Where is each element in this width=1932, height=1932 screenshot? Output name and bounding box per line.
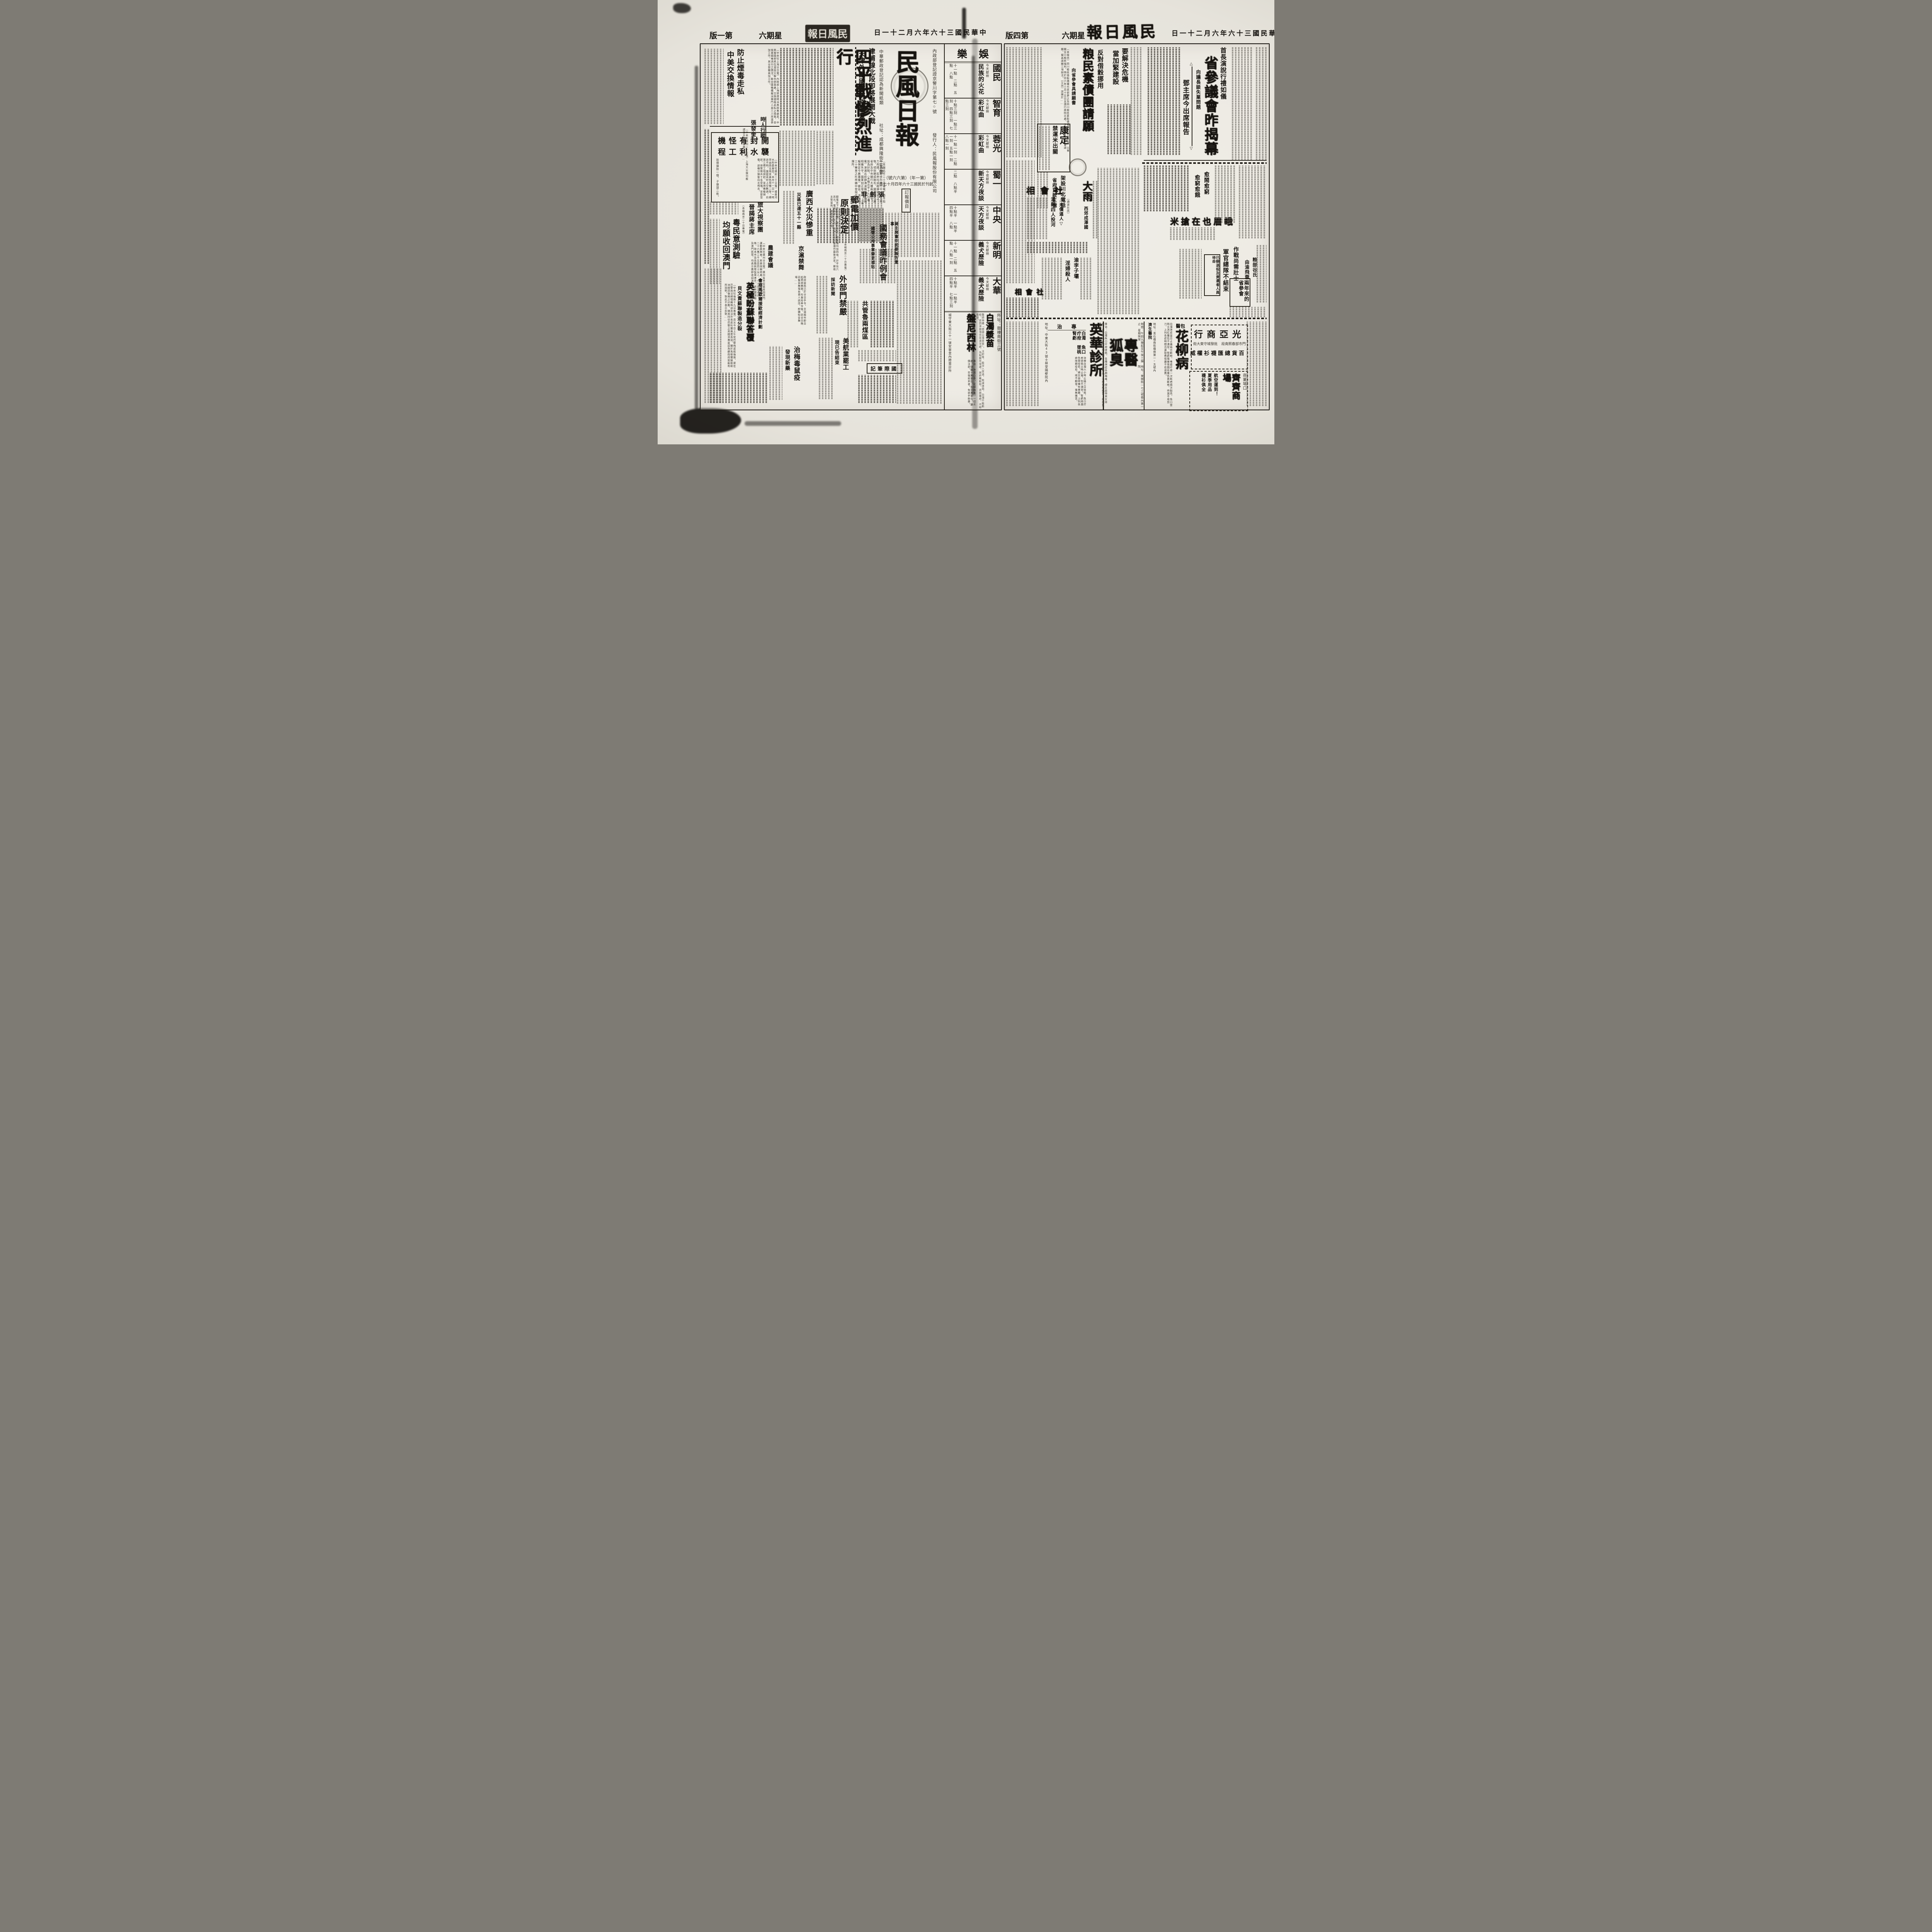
column-text bbox=[1097, 168, 1141, 315]
rule bbox=[710, 126, 779, 127]
shehui2-title: 社會相 bbox=[1015, 287, 1047, 297]
divider bbox=[1142, 162, 1267, 164]
left-edition-label: 第一版 bbox=[709, 29, 733, 41]
column-text bbox=[1148, 47, 1180, 155]
masthead-issue-number: （第一年）（第六六號） bbox=[882, 175, 930, 181]
column-text bbox=[1179, 249, 1202, 299]
meizhi-headline: 治梅毒鼠疫 bbox=[793, 346, 799, 393]
huajiu-clinic-name: 濟生醫院 bbox=[1146, 323, 1151, 408]
grain-subhead: 向省參會具請願書 bbox=[1071, 68, 1076, 138]
column-text bbox=[704, 268, 721, 403]
left-masthead-stamp: 民風日報 bbox=[805, 25, 850, 42]
drug-headline-1: 防止煙毒走私 bbox=[736, 49, 744, 111]
yinghua-label: 專治 bbox=[1048, 323, 1086, 330]
column-text bbox=[710, 202, 738, 215]
meihang-subhead: 現已告結束 bbox=[834, 340, 839, 383]
rule bbox=[1144, 160, 1267, 161]
huchou-specialty: 專治：白濁魚口疔疳墜桃，各種淋症各期梅毒，婦女崩帶男女痔症。本所專治各症概用最新… bbox=[1098, 323, 1107, 408]
yinghua-clinic-ad: 英華診所 專治 白濁 魚口 疔疳 墜桃 腎虧 治療白濁六小時止痛三日除根，魚口疔… bbox=[1042, 321, 1104, 410]
dayu-subhead: 西郊成澤國 bbox=[1083, 206, 1088, 240]
column-text bbox=[1232, 47, 1253, 161]
ads-divider bbox=[1006, 318, 1267, 319]
showtimes: 十一點 二點 五點 八點 bbox=[946, 64, 957, 97]
column-text bbox=[1080, 257, 1092, 300]
huajiu-kicker: 包醫 bbox=[1176, 323, 1185, 329]
theater-name: 大華 bbox=[989, 277, 1000, 310]
masthead-title: 民風日報 bbox=[891, 49, 920, 173]
corner-ink-blob bbox=[673, 3, 691, 13]
ad-address-secondary: 所址：鼓樓南街三號 bbox=[994, 313, 1000, 410]
left-page: 娛樂 國民 今天獻映 民族的火花 十一點 二點 五點 八點 智育 今天獻映 彩虹… bbox=[700, 43, 1002, 410]
column-text bbox=[816, 131, 833, 185]
film-title: 天方夜談 bbox=[957, 206, 984, 239]
column-text bbox=[1230, 307, 1267, 318]
bevin-headline: 英極盼蘇聯答覆 bbox=[745, 282, 754, 355]
waibu-headline: 外部門禁嚴 bbox=[838, 275, 847, 323]
qiqi-line1: 航空運到！ bbox=[1212, 373, 1218, 409]
drug-headline-2: 中美交換情報 bbox=[726, 51, 734, 113]
jinghu-body: 政府當局已於廿日手令，京滬兩市即日起禁絕舞業，社會局奉令後，定廿日晚召集各舞場負… bbox=[776, 276, 806, 326]
nongjian-headline: 農建會議 bbox=[767, 245, 773, 272]
column-text bbox=[779, 131, 815, 186]
column-text bbox=[704, 129, 709, 264]
yinghua-address: 地址：中東大街43號士林堂隔壁院內 bbox=[1043, 323, 1048, 408]
masthead-publisher: 發行人：民風報股份有限公司 bbox=[932, 133, 936, 202]
huchou-clinic-ad: 時間：午前九鐘起至午後三鐘止 星期照常 地址：東御街一七三號巷內第一院 專醫狐臭… bbox=[1102, 321, 1145, 410]
column-text bbox=[769, 346, 782, 400]
qiqi-line2: 夏季用品 bbox=[1206, 373, 1212, 409]
right-edition-label: 第四版 bbox=[1005, 29, 1029, 41]
lvda-dateline: （本報南京二十日專電） bbox=[742, 204, 744, 239]
huajiu-body: 白濁淋症當日止痛兩日斷根，毒瘡疔疳一次乾疤兩次脫亮，魚口墜桃立消紅腫包不潰穿，腎… bbox=[1156, 323, 1172, 408]
bevin-kicker: 會商馬歇爾援歐經濟計劃 bbox=[758, 278, 762, 348]
theater-name: 蜀一 bbox=[989, 170, 1000, 204]
theater-name: 蓉光 bbox=[989, 135, 1000, 168]
column-text bbox=[704, 49, 724, 124]
meizhi-subhead: 發現新藥 bbox=[784, 349, 789, 388]
column-text bbox=[783, 191, 795, 244]
showing-note: 今天獻映 bbox=[984, 99, 989, 133]
kaifeng-headline-1: 開封有怪機 bbox=[713, 134, 777, 146]
kaifeng-body: 〔中央社開封二十日電〕據黃河水利委會息，本月十一日十一時突由西北飛來黃色飛機二架… bbox=[719, 158, 777, 199]
right-masthead-calligraphy: 民風日報 bbox=[1087, 19, 1158, 42]
junguan-note-box: 已辦退役及資遣者人員待命 bbox=[1204, 254, 1220, 296]
huajiu-name: 花柳病 bbox=[1173, 329, 1188, 387]
qiqi-location: 商業場口 bbox=[1240, 373, 1246, 409]
masthead-postal: 中華郵政登記認為新聞紙類 bbox=[878, 49, 883, 119]
bracket-arrow: △ ▽ bbox=[1192, 66, 1192, 146]
guangya-tagline2: 襪衫權威 bbox=[1190, 349, 1218, 357]
column-text bbox=[1131, 47, 1141, 155]
column-text bbox=[1006, 298, 1040, 318]
column-text bbox=[897, 260, 942, 404]
lvda-line2: 晉謁蔣主席 bbox=[748, 204, 755, 243]
grain-kicker: 反對借穀挪用 bbox=[1097, 49, 1103, 115]
showing-note: 今天獻映 bbox=[984, 277, 989, 310]
yue-headline-2: 均願收回澳門 bbox=[721, 221, 730, 283]
right-date-line: 中華民國三十六年六月二十一日 bbox=[1172, 28, 1274, 37]
guangya-ad-box: 光亞商行 門市部春熙南段 批發城守東大街 百貨總匯 襪衫權威 bbox=[1191, 325, 1248, 369]
column-text bbox=[816, 276, 829, 334]
showtimes: 十點半 一點半 四點半 八點 bbox=[946, 206, 957, 239]
bevin-subhead: 貝文責蘇聯製造分裂 bbox=[737, 286, 742, 355]
yinghua-body: 治療白濁六小時止痛三日除根，魚口疔疳墜桃立時止痛，包不潰穿，腎虧痔漏負責痊愈，婦… bbox=[1048, 357, 1086, 408]
column-text bbox=[847, 301, 860, 348]
shehui1-item1: △米價逼人▽ bbox=[1059, 197, 1063, 237]
yinwu-line2: 淫婦殺人 bbox=[1064, 260, 1070, 291]
left-weekday-label: 星期六 bbox=[759, 29, 782, 41]
column-text bbox=[1006, 160, 1035, 284]
left-date-line: 中華民國三十六年六月二十一日 bbox=[874, 27, 988, 37]
guangxi-subhead: 災區已達五十一縣 bbox=[796, 192, 801, 247]
lvda-line1: 旅大視察團 bbox=[757, 202, 763, 240]
kaifeng-story-box: 開封有怪機 襲水利工程 〔中央社開封二十日電〕據黃河水利委會息，本月十一日十一時… bbox=[711, 132, 779, 202]
right-weekday-label: 星期六 bbox=[1062, 29, 1085, 41]
rp-lead-headline: 省參議會昨揭幕 bbox=[1202, 56, 1218, 156]
edge-fold-shadow bbox=[695, 66, 698, 410]
crisis-line2: 當加緊建設 bbox=[1111, 50, 1118, 100]
film-title: 民族的火花 bbox=[957, 64, 984, 97]
waibu-subhead: 採訪新聞 bbox=[830, 277, 835, 312]
showing-note: 今夜獻映 bbox=[984, 170, 989, 204]
column-text bbox=[780, 48, 833, 126]
junguan-headline: 軍官總隊不結束 bbox=[1223, 249, 1229, 299]
kangding-headline-2: 禁運米出關 bbox=[1051, 126, 1058, 170]
film-title: 新天方夜談 bbox=[957, 170, 984, 204]
circular-stamp bbox=[1069, 158, 1087, 176]
kaifeng-headline-2: 襲水利工程 bbox=[713, 146, 777, 157]
column-text bbox=[819, 338, 833, 400]
showing-note: 今天獻映 bbox=[984, 64, 989, 97]
column-text bbox=[1215, 165, 1236, 223]
jinghu-headline: 京滬禁舞 bbox=[798, 246, 804, 275]
showtimes: 十點三刻 一點三刻 四點三刻 七點三刻 bbox=[946, 99, 957, 133]
film-title: 彩虹曲 bbox=[957, 135, 984, 168]
showtimes: 十一點 二點 五點 八點一刻 bbox=[946, 241, 957, 275]
theater-name: 智育 bbox=[989, 99, 1000, 133]
zhangjianfei-headline: 張劍非 bbox=[861, 189, 887, 199]
showing-note: 今天獻映 bbox=[984, 206, 989, 239]
huchou-address: 地址：東御街一七三號巷內第一院 bbox=[1138, 365, 1143, 408]
dayu-headline: 大雨 bbox=[1081, 181, 1092, 204]
column-text bbox=[871, 301, 895, 348]
guangya-tagline1: 百貨總匯 bbox=[1218, 349, 1246, 357]
column-text bbox=[1257, 245, 1267, 303]
arrow-down-glyph: ▽ bbox=[1190, 146, 1193, 151]
qiqi-ad-box: 商業場口 齊齊商場 航空運到！ 夏季用品 襪衫俱全 bbox=[1189, 371, 1248, 411]
emei-sub1: 愈鬧愈窮 bbox=[1203, 172, 1209, 202]
ad-title-baizhuojiangmiao: 白濁漿苗 bbox=[984, 313, 994, 410]
guangya-line1: 門市部春熙南段 bbox=[1221, 341, 1246, 346]
column-text bbox=[1247, 321, 1267, 406]
film-title: 義犬歷險 bbox=[957, 241, 984, 275]
right-page: 首長演說行禮如儀 省參議會昨揭幕 向議長談失業問題 △ ▽ 鄧主席今出席報告 要… bbox=[1004, 43, 1270, 410]
drug-body: 〔中央社上海廿日電〕內政部上海禁煙特派員辦事處息，中美兩國即將在滬設立聯合辦事處… bbox=[746, 49, 779, 124]
rp-lead-subhead: 鄧主席今出席報告 bbox=[1182, 80, 1189, 157]
youdian-dateline: （本報南京二十日專電） bbox=[844, 240, 846, 271]
column-text bbox=[1006, 321, 1039, 406]
guangxi-headline: 廣西水災慘重 bbox=[805, 190, 813, 240]
column-text bbox=[1144, 165, 1189, 212]
meihang-headline: 美航業罷工 bbox=[842, 338, 849, 380]
emei-sub2: 愈窮愈餓 bbox=[1194, 175, 1200, 206]
shehui1-item2: 灌縣四人投河 bbox=[1050, 197, 1055, 240]
column-text bbox=[1239, 165, 1267, 239]
film-title: 彩虹曲 bbox=[957, 99, 984, 133]
theater-name: 國民 bbox=[989, 64, 1000, 97]
column-text bbox=[1170, 227, 1215, 240]
column-text bbox=[1256, 47, 1267, 161]
shehui1-dateline: 〔通波社訊〕 bbox=[1066, 197, 1070, 224]
youdian-body: 郵電定下月起加價，原則決定，郵電價均加四倍，計平信六百元，電報每字一千元，尚待立… bbox=[827, 196, 838, 273]
kangding-box: 康定 禁運米出關 bbox=[1037, 124, 1070, 172]
rp-lead-kicker: 首長演說行禮如儀 bbox=[1219, 47, 1226, 121]
theater-name: 新明 bbox=[989, 241, 1000, 275]
crisis-line1: 要解決危機 bbox=[1121, 48, 1128, 98]
lead-headline: 四平戰慘烈進行 bbox=[833, 48, 871, 160]
huchou-hours: 時間：午前九鐘起至午後三鐘止 星期照常 bbox=[1138, 323, 1143, 365]
guangya-name: 光亞商行 bbox=[1193, 327, 1246, 340]
qiqi-name: 齊齊商場 bbox=[1218, 373, 1240, 406]
showing-note: 今天獻映 bbox=[984, 135, 989, 168]
huchou-name: 專醫狐臭 bbox=[1107, 338, 1137, 375]
qiqi-line3: 襪衫俱全 bbox=[1199, 373, 1206, 409]
film-title: 義犬歷險 bbox=[957, 277, 984, 310]
guangya-line2: 批發城守東大街 bbox=[1193, 341, 1218, 346]
bottom-streak bbox=[745, 421, 841, 426]
yinghua-diseases: 白濁 魚口 疔疳 墜桃 腎虧 bbox=[1048, 331, 1086, 357]
liangbu-line1: 粮部谷氏 bbox=[1252, 257, 1257, 284]
subscription-price-box: 訂報價目 bbox=[901, 189, 911, 213]
column-text bbox=[858, 375, 896, 403]
showtimes: 十一點一刻 二點一刻 五點一刻 八點一刻 bbox=[946, 135, 957, 168]
newspaper-scan: 第一版 星期六 民風日報 中華民國三十六年六月二十一日 第四版 星期六 民風日報… bbox=[658, 0, 1274, 444]
youdian-headline-1: 郵電加價 bbox=[849, 196, 858, 236]
showing-note: 今天獻映 bbox=[984, 241, 989, 275]
shencanhui-box: 兩年來的省參會 bbox=[1230, 278, 1250, 307]
column-text bbox=[1027, 242, 1089, 253]
huajiu-address: 地址：青石橋南街橋側第一○五號內 bbox=[1151, 323, 1156, 408]
ad-body-text: 醫師特備「德國白濁漿苗」。注射後，能深入尿道，殺滅淋菌，白濁不能斷根，是因淋菌潛… bbox=[975, 313, 984, 410]
kangding-headline-1: 康定 bbox=[1058, 126, 1068, 170]
masthead-founding-date: 創刊於民國三十六年四月十七日 bbox=[879, 181, 933, 187]
theater-name: 中央 bbox=[989, 206, 1000, 239]
arrow-up-glyph: △ bbox=[1190, 62, 1193, 66]
kaifeng-note: 拾得彈殼一個，子彈頭二枚。 bbox=[713, 158, 719, 199]
column-text bbox=[860, 249, 895, 284]
column-text bbox=[858, 350, 896, 362]
rp-lead-bracket: 向議長談失業問題 bbox=[1196, 70, 1201, 143]
yinwu-line1: 渝李子壩 bbox=[1073, 257, 1078, 288]
bottom-ink-blob bbox=[680, 408, 741, 434]
huajiu-ad: 包醫 花柳病 白濁淋症當日止痛兩日斷根，毒瘡疔疳一次乾疤兩次脫亮，魚口墜桃立消紅… bbox=[1144, 321, 1190, 410]
yue-headline-1: 粵民意測驗 bbox=[731, 219, 740, 277]
masthead-registration: 內政部登記證京警川字第七○號 bbox=[932, 49, 936, 130]
grain-headline: 粮民素債團請願 bbox=[1080, 48, 1093, 152]
ad-address-main: 城守東大街三十一號安寧里內際雲診所 bbox=[946, 313, 951, 410]
fold-ink-streak bbox=[972, 56, 975, 396]
showtimes: 二點 八點半 bbox=[946, 170, 957, 204]
youdian-headline-2: 原則決定 bbox=[839, 199, 848, 239]
gongguan-headline: 共管魯兩煤區 bbox=[861, 301, 868, 349]
showtimes: 十點半 一點半 四點半 七點三刻 bbox=[946, 277, 957, 310]
column-text bbox=[1107, 104, 1131, 155]
